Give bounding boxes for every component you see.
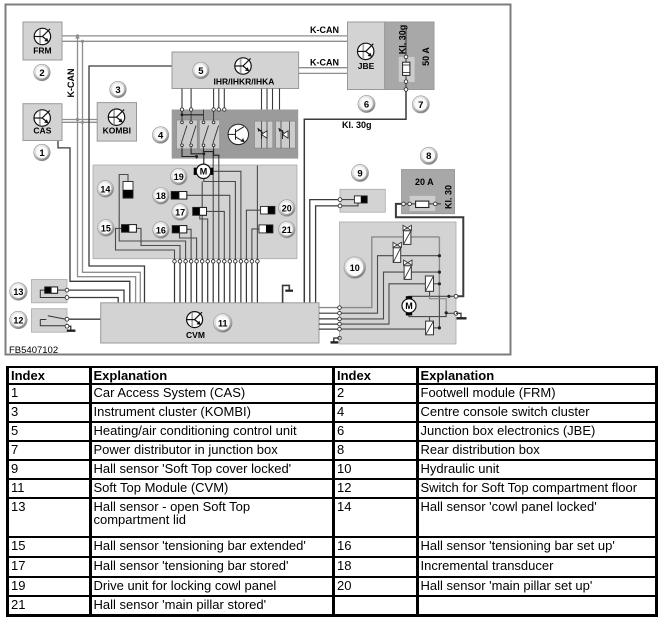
svg-text:17: 17	[175, 207, 185, 217]
svg-text:19: 19	[174, 172, 184, 182]
svg-text:10: 10	[350, 263, 360, 273]
svg-text:K-CAN: K-CAN	[310, 25, 339, 35]
svg-text:CAS: CAS	[33, 126, 51, 136]
svg-text:2: 2	[39, 68, 44, 79]
svg-text:14: 14	[100, 184, 110, 194]
svg-text:20 A: 20 A	[415, 177, 434, 187]
svg-text:Kl. 30: Kl. 30	[444, 185, 454, 209]
svg-text:FB5407102: FB5407102	[9, 345, 58, 356]
svg-text:CVM: CVM	[186, 330, 205, 340]
svg-text:12: 12	[13, 315, 23, 325]
svg-text:M: M	[200, 167, 208, 177]
svg-text:Kl. 30g: Kl. 30g	[342, 120, 372, 130]
svg-text:11: 11	[218, 318, 228, 328]
svg-text:4: 4	[158, 130, 164, 141]
svg-text:13: 13	[13, 287, 23, 297]
svg-text:15: 15	[101, 223, 111, 233]
svg-text:1: 1	[39, 148, 45, 159]
svg-text:IHR/IHKR/IHKA: IHR/IHKR/IHKA	[214, 77, 275, 87]
svg-text:8: 8	[426, 151, 431, 162]
svg-text:18: 18	[156, 191, 166, 201]
svg-text:FRM: FRM	[33, 46, 51, 56]
svg-text:K-CAN: K-CAN	[310, 58, 339, 68]
svg-text:20: 20	[282, 203, 292, 213]
svg-text:5: 5	[198, 66, 204, 77]
svg-text:21: 21	[282, 225, 292, 235]
svg-text:3: 3	[115, 85, 120, 96]
svg-text:KOMBI: KOMBI	[103, 126, 131, 136]
svg-text:9: 9	[357, 168, 362, 179]
svg-text:K-CAN: K-CAN	[66, 69, 76, 98]
svg-text:50 A: 50 A	[421, 47, 431, 66]
svg-text:16: 16	[156, 225, 166, 235]
svg-text:JBE: JBE	[358, 61, 375, 71]
svg-text:6: 6	[364, 99, 369, 110]
svg-text:Kl. 30g: Kl. 30g	[397, 25, 407, 55]
svg-text:M: M	[405, 301, 413, 311]
svg-text:7: 7	[418, 100, 423, 111]
